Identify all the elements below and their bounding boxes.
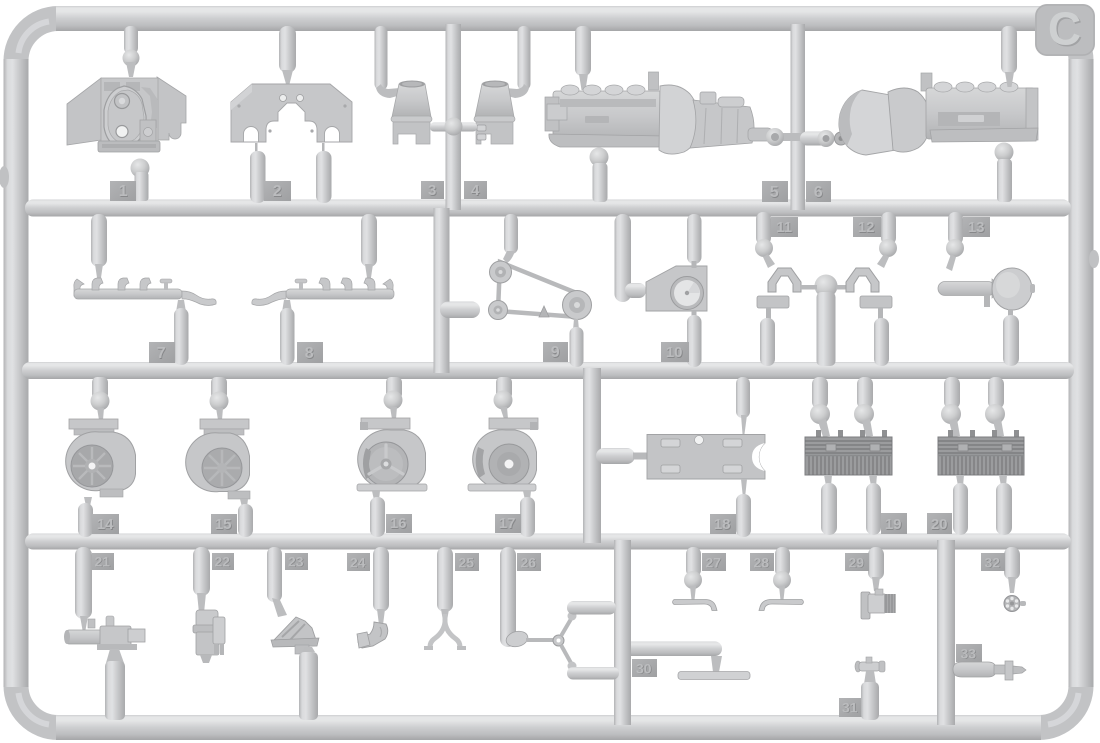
svg-text:20: 20 (931, 516, 948, 533)
svg-text:12: 12 (858, 219, 875, 236)
svg-text:18: 18 (714, 516, 731, 533)
svg-text:8: 8 (305, 345, 314, 362)
svg-text:31: 31 (842, 699, 858, 715)
svg-text:17: 17 (499, 515, 516, 532)
svg-text:27: 27 (706, 554, 722, 570)
svg-text:6: 6 (814, 184, 823, 201)
svg-text:14: 14 (97, 516, 114, 533)
svg-text:23: 23 (288, 553, 304, 569)
svg-text:5: 5 (770, 184, 779, 201)
svg-text:33: 33 (961, 645, 977, 661)
svg-text:22: 22 (215, 553, 231, 569)
svg-text:29: 29 (849, 554, 865, 570)
svg-text:11: 11 (776, 219, 792, 236)
svg-text:15: 15 (215, 516, 232, 533)
svg-text:4: 4 (471, 182, 480, 199)
svg-text:21: 21 (95, 553, 111, 569)
svg-text:25: 25 (459, 554, 475, 570)
svg-text:9: 9 (551, 344, 560, 361)
svg-text:26: 26 (521, 554, 537, 570)
svg-text:13: 13 (968, 219, 985, 236)
svg-text:7: 7 (157, 345, 166, 362)
svg-text:10: 10 (666, 344, 683, 361)
svg-text:16: 16 (390, 515, 407, 532)
svg-text:19: 19 (885, 516, 902, 533)
svg-text:C: C (1048, 3, 1081, 55)
svg-text:28: 28 (754, 554, 770, 570)
svg-text:3: 3 (428, 182, 436, 199)
svg-text:32: 32 (985, 554, 1001, 570)
svg-text:24: 24 (350, 554, 366, 570)
svg-text:2: 2 (273, 183, 282, 200)
svg-text:1: 1 (119, 183, 128, 200)
svg-text:30: 30 (636, 660, 652, 676)
